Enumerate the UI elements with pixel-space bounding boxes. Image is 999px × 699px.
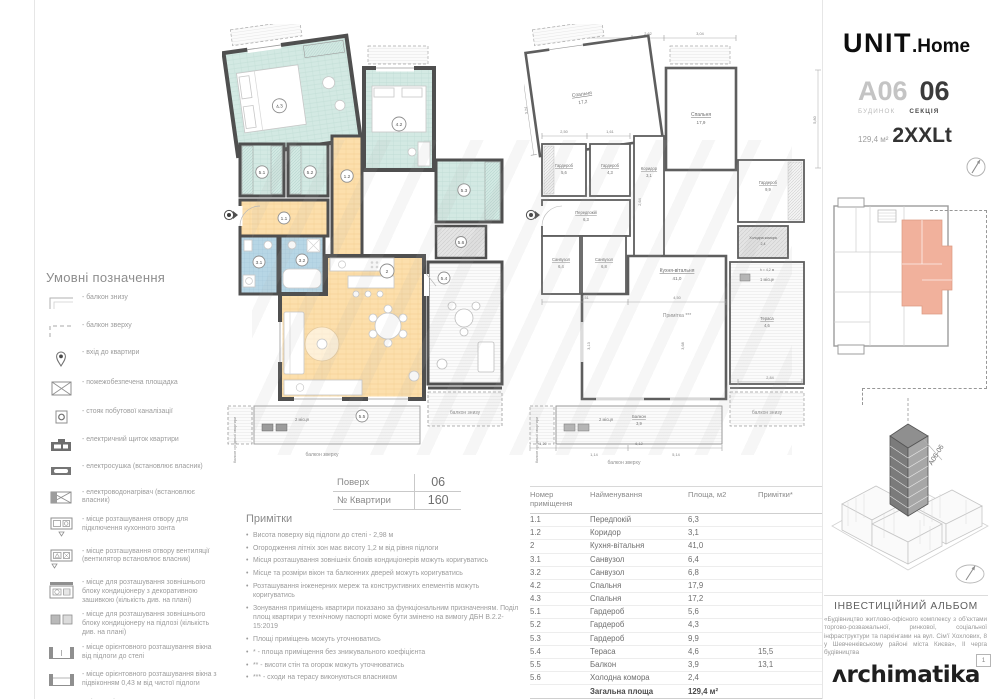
header-notes: Примітки* (758, 490, 822, 509)
apartment-value: 160 (414, 492, 461, 509)
note-item: ** - висоти стін та огорож можуть уточню… (246, 661, 522, 670)
apartment-type: 2XXLt (892, 124, 952, 148)
room-corridor-12 (332, 136, 362, 256)
album-title: ІНВЕСТИЦІЙНИЙ АЛЬБОМ (824, 601, 988, 612)
notes-section: Примітки Висота поверху від підлоги до с… (246, 513, 522, 686)
dim: 3,13 (587, 342, 591, 349)
room-label: Гардероб (555, 163, 574, 168)
plant (409, 371, 419, 381)
legend-item: - місце для розташування зовнішнього бло… (46, 611, 222, 638)
table-row: 3.1Санвузол6,4 (530, 554, 822, 567)
note-item: * - площа приміщення без знижувального к… (246, 648, 522, 657)
legend-item: - електричний щиток квартири (46, 436, 222, 458)
dim: 1,20 (539, 442, 546, 446)
legend-item: - місце для розташування зовнішнього бло… (46, 579, 222, 606)
ac-unit (276, 424, 287, 431)
table-row: 5.4Тераса4,615,5 (530, 646, 822, 659)
fire-safe-area-icon (46, 379, 82, 403)
sink (288, 241, 296, 249)
ac-unit-floor-icon (46, 611, 82, 633)
ac-unit-covered-icon (46, 579, 82, 605)
building-label: БУДИНОК (858, 108, 895, 115)
logo-home-text: .Home (912, 36, 970, 58)
room-area: 41,0 (673, 276, 682, 281)
room-area: 9,9 (765, 187, 771, 192)
note-item: Місця розташування зовнішніх блоків конд… (246, 556, 522, 565)
room-label: Санвузол (552, 257, 571, 262)
note-item: Зонування приміщень квартири показано за… (246, 604, 522, 632)
table-row: 4.3Спальня17,2 (530, 593, 822, 606)
room-area: 17,9 (697, 120, 706, 125)
room-number-5-4: 5.4 (441, 276, 448, 282)
header-number: Номер приміщення (530, 490, 590, 509)
room-area: 6,3 (583, 217, 589, 222)
legend-item: - місце розташування отвору вентиляції (… (46, 548, 222, 574)
note-item: Місце та розміри вікон та балконних двер… (246, 569, 522, 578)
neighbor-balcony-label: балкон сусідньої квартири (535, 417, 539, 463)
bathtub (283, 269, 321, 288)
lounge-chair (478, 342, 494, 372)
terrace-table (455, 309, 473, 327)
dim: 2,50 (560, 130, 567, 134)
table-row: 2Кухня-вітальня41,0 (530, 540, 822, 553)
neighbor-balcony (228, 406, 252, 444)
entrance-pin-icon (46, 349, 82, 373)
ac-count-label: 1 місце (760, 277, 775, 282)
full-height-window-icon (46, 644, 82, 666)
ac-unit (564, 424, 575, 431)
table-row: 5.1Гардероб5,6 (530, 606, 822, 619)
sofa (284, 312, 304, 374)
balcony-below-outline (428, 392, 502, 426)
building-code: A06 (858, 76, 908, 107)
room-label: Гардероб (601, 163, 620, 168)
table-row: 5.3Гардероб9,9 (530, 633, 822, 646)
apartment-row: № Квартири 160 (333, 492, 461, 510)
window-with-sill-icon (46, 671, 82, 693)
dim: 2,51 (581, 296, 588, 300)
toilet (244, 240, 252, 251)
room-label: Передпокій (575, 210, 597, 215)
note-item: Огородження літніх зон має висоту 1,2 м … (246, 544, 522, 553)
balcony-above-label: балкон зверху (305, 452, 339, 458)
legend-item: - місце розташування отвору для підключе… (46, 516, 222, 542)
room-label: Холодна комора (749, 236, 777, 240)
dining-table (375, 313, 401, 339)
floor-plan-colored: 4.3 4.2 5.1 5.2 1.2 5.3 5.6 (222, 24, 522, 469)
room-number-5-6: 5.6 (458, 240, 465, 246)
floor-info-table: Поверх 06 № Квартири 160 (333, 474, 461, 510)
washer (243, 275, 255, 287)
plant (437, 359, 447, 369)
room-area: 5,6 (561, 170, 567, 175)
table-row: 5.5Балкон3,913,1 (530, 659, 822, 672)
dim: 5,14 (672, 453, 679, 457)
neighbor-balcony-label: балкон сусідньої квартири (233, 417, 237, 463)
dim: 6,12 (635, 442, 642, 446)
floor-plan-dimensions: 3,31 2,62 3,04 Спальня 17,2 3,24 Спальня… (524, 24, 824, 469)
room-number-2: 2 (386, 269, 389, 275)
kitchen-counter-bottom (284, 380, 362, 395)
table-row: 5.6Холодна комора2,4 (530, 672, 822, 685)
legend-item: - електросушка (встановлює власник) (46, 463, 222, 483)
room-area: 2,4 (761, 242, 766, 246)
room-number-1-2: 1.2 (344, 174, 351, 180)
dim: 4,50 (673, 296, 680, 300)
room-corridor-12 (634, 136, 664, 256)
ac-unit (740, 274, 750, 281)
terrace-height-note: h = 4,2 м (760, 268, 775, 272)
vent-opening-icon (46, 548, 82, 574)
floor-plan-sheet: 4.3 4.2 5.1 5.2 1.2 5.3 5.6 (0, 0, 999, 699)
room-number-5-2: 5.2 (307, 170, 314, 176)
keyplan-axon-connector (930, 210, 987, 389)
legend-item: - місце орієнтовного розташування вікна … (46, 671, 222, 693)
balcony-below-label: балкон знизу (450, 410, 481, 416)
room-label: Кухня-вітальня (660, 268, 695, 274)
apartment-area: 129,4 м² (858, 135, 888, 144)
chair (408, 148, 416, 156)
legend-item: - пожежобезпечена площадка (46, 379, 222, 403)
room-label: Балкон (632, 414, 646, 419)
electric-panel-icon (46, 436, 82, 458)
compass-icon (964, 155, 988, 179)
legend: Умовні позначення - балкон знизу - балко… (46, 270, 222, 699)
note-reference: Примітка *** (663, 313, 691, 319)
floor-row: Поверх 06 (333, 474, 461, 492)
ac-unit (262, 424, 273, 431)
entrance-pin-icon (526, 210, 540, 219)
note-item: Розташування інженерних мереж та констру… (246, 582, 522, 601)
dim: 5,80 (813, 116, 817, 123)
desk (418, 142, 430, 166)
kitchen-hood-opening-icon (46, 516, 82, 542)
room-number-4-3: 4.3 (276, 103, 284, 110)
entrance-pin-icon (224, 210, 238, 219)
page-edge-line-left (34, 0, 35, 699)
dim: 3,68 (681, 342, 685, 349)
balcony-above-icon (46, 322, 82, 344)
ac-count-label: 2 місця (295, 417, 309, 422)
dim: 3,24 (524, 106, 529, 114)
room-area: 4,6 (764, 323, 770, 328)
note-item: Площі приміщень можуть уточнюватись (246, 635, 522, 644)
archimatika-logo: ʌrchimatika (824, 662, 988, 688)
building-section-block: A06 06 БУДИНОК СЕКЦІЯ 129,4 м² 2XXLt (858, 76, 980, 148)
legend-item: - балкон зверху (46, 322, 222, 344)
room-area: 3,9 (636, 421, 642, 426)
room-area: 4,3 (607, 170, 613, 175)
rooms-table-header: Номер приміщення Найменування Площа, м2 … (530, 487, 822, 514)
dim: 3,04 (696, 32, 703, 36)
sewer-riser-icon (46, 408, 82, 430)
room-bedroom-42 (666, 68, 736, 170)
room-area: 3,1 (646, 173, 652, 178)
axonometric-view: A06-06 (820, 398, 995, 590)
room-label: Коридор (641, 166, 658, 171)
dim: 2,84 (766, 376, 773, 380)
logo-unit-text: UNIT (843, 28, 912, 59)
table-row: 4.2Спальня17,9 (530, 580, 822, 593)
balcony-below-icon (46, 294, 82, 316)
note-item: *** - сходи на терасу виконуються власни… (246, 673, 522, 682)
room-number-1-1: 1.1 (281, 216, 288, 222)
upper-balcony-outline (368, 46, 428, 64)
total-area-row: Загальна площа129,4 м² (530, 685, 822, 699)
unit-home-logo: UNIT.Home (843, 28, 970, 59)
highlighted-building (890, 424, 928, 516)
header-name: Найменування (590, 490, 688, 509)
table-row: 3.2Санвузол6,8 (530, 567, 822, 580)
floor-label: Поверх (333, 474, 414, 491)
legend-item: - місце орієнтовного розташування вікна … (46, 644, 222, 666)
table-row: 1.1Передпокій6,3 (530, 514, 822, 527)
balcony-above-label: балкон зверху (607, 460, 641, 466)
apartment-label: № Квартири (333, 492, 414, 509)
room-label: Тераса (760, 316, 774, 321)
sink (264, 241, 272, 249)
room-label: Гардероб (759, 180, 778, 185)
album-description: «Будівництво житлово-офісного комплексу … (824, 616, 987, 657)
floor-value: 06 (414, 474, 461, 491)
right-column-divider (824, 595, 988, 596)
legend-title: Умовні позначення (46, 270, 222, 285)
notes-title: Примітки (246, 513, 522, 525)
dim: 2,64 (638, 198, 642, 205)
header-area: Площа, м2 (688, 490, 758, 509)
electric-dryer-icon (46, 463, 82, 483)
legend-item: - балкон знизу (46, 294, 222, 316)
neighbor-balcony (530, 406, 554, 444)
ac-unit (578, 424, 589, 431)
room-label: Санвузол (595, 257, 614, 262)
room-number-5-1: 5.1 (259, 170, 266, 176)
legend-item: - вхід до квартири (46, 349, 222, 373)
room-number-5-3: 5.3 (461, 188, 468, 194)
section-code: 06 (920, 76, 950, 107)
room-number-3-1: 3.1 (256, 260, 263, 266)
legend-item: - електроводонагрівач (встановлює власни… (46, 489, 222, 511)
balcony-below-label: балкон знизу (752, 410, 783, 416)
table-row: 1.2Коридор3,1 (530, 527, 822, 540)
balcony-below-outline (730, 392, 804, 426)
dim: 1,61 (606, 130, 613, 134)
room-area: 6,8 (601, 264, 607, 269)
note-item: Висота поверху від підлоги до стелі - 2,… (246, 531, 522, 540)
water-heater-icon (46, 489, 82, 511)
room-number-5-5: 5.5 (359, 414, 366, 420)
room-number-4-2: 4.2 (396, 122, 403, 128)
legend-item: - стояк побутової каналізації (46, 408, 222, 430)
room-number-3-2: 3.2 (299, 258, 306, 264)
room-area: 6,4 (558, 264, 564, 269)
dim: 1,14 (590, 453, 597, 457)
section-label: СЕКЦІЯ (909, 108, 939, 115)
room-label: Спальня (691, 112, 711, 118)
ac-count-label: 2 місця (599, 417, 613, 422)
rooms-table: Номер приміщення Найменування Площа, м2 … (530, 486, 822, 699)
table-row: 5.2Гардероб4,3 (530, 619, 822, 632)
